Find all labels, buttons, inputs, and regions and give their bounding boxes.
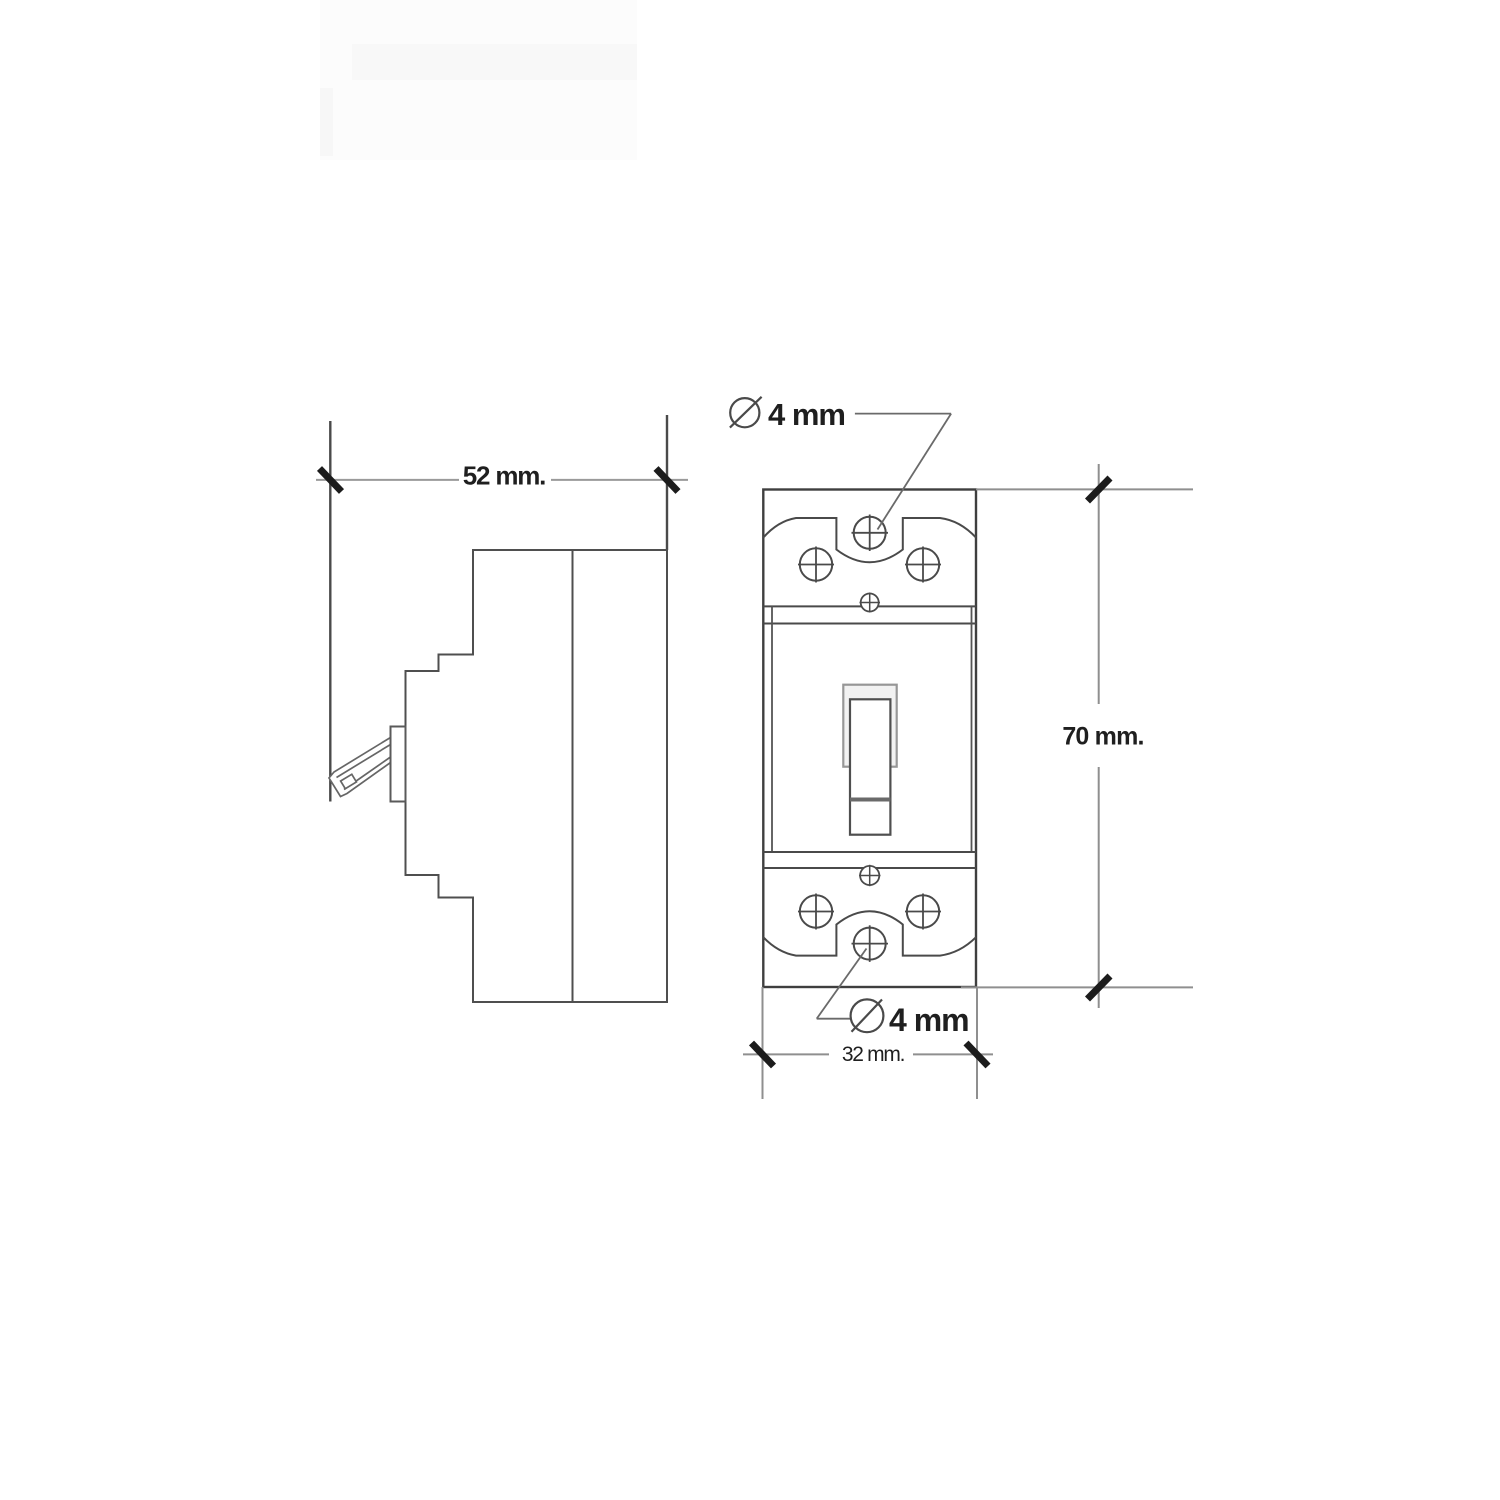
svg-text:32 mm.: 32 mm. bbox=[842, 1043, 904, 1066]
svg-text:70 mm.: 70 mm. bbox=[1062, 722, 1143, 750]
svg-text:4 mm: 4 mm bbox=[889, 1002, 969, 1038]
svg-text:52 mm.: 52 mm. bbox=[463, 461, 545, 491]
svg-text:4 mm: 4 mm bbox=[768, 397, 845, 432]
